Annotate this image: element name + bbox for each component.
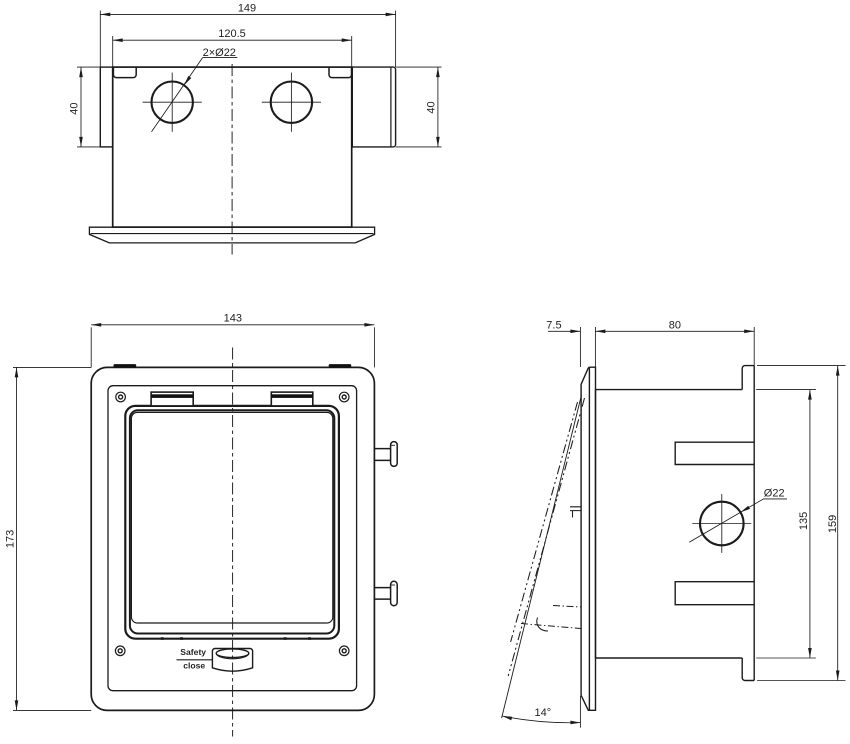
- svg-text:149: 149: [238, 2, 256, 14]
- svg-text:40: 40: [69, 102, 81, 114]
- svg-text:2×Ø22: 2×Ø22: [203, 47, 236, 59]
- svg-text:40: 40: [426, 101, 438, 113]
- svg-text:14°: 14°: [534, 707, 551, 719]
- svg-text:close: close: [183, 660, 205, 670]
- svg-text:80: 80: [669, 320, 681, 332]
- svg-text:Safety: Safety: [180, 647, 206, 657]
- svg-text:159: 159: [827, 515, 839, 533]
- svg-text:120.5: 120.5: [218, 28, 246, 40]
- svg-text:7.5: 7.5: [546, 320, 561, 332]
- svg-text:173: 173: [5, 530, 17, 548]
- svg-text:Ø22: Ø22: [764, 487, 785, 499]
- svg-text:143: 143: [224, 313, 242, 325]
- svg-text:135: 135: [798, 512, 810, 530]
